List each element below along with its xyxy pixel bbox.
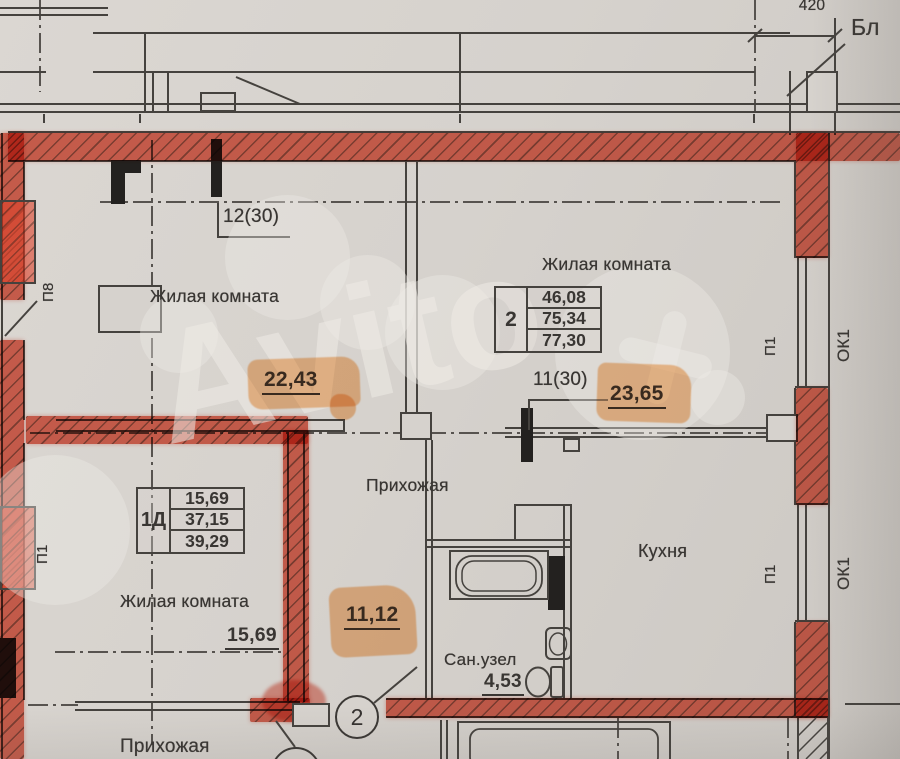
window-frame [797, 258, 799, 388]
toilet-bowl [526, 668, 550, 697]
wall-ref-12-30: 12(30) [223, 206, 279, 228]
highlight-area-11-12 [328, 584, 418, 658]
partition-line [425, 539, 572, 541]
wall-junction-box [766, 414, 798, 442]
partition-line [505, 427, 777, 429]
parapet-line [0, 71, 46, 73]
scan-shading-overlay [0, 0, 900, 759]
shaft-line [515, 504, 572, 506]
room-name-bathroom: Сан.узел [444, 650, 517, 670]
bathtub-inner [462, 561, 536, 591]
highlight-smudge [330, 394, 356, 420]
dimension-420-label: 420 [782, 0, 842, 15]
floor-plan-scan: Avito 420 Бл 12(30) 11(30) Жилая комната… [0, 0, 900, 759]
parapet-line [152, 71, 154, 111]
node-marker-circle: 2 [335, 695, 379, 739]
room-area-living-bottom: 15,69 [225, 624, 279, 650]
watermark-circle [385, 275, 500, 390]
wall-step-box [292, 703, 330, 727]
window-frame [805, 258, 807, 388]
wall-notch-box [563, 438, 580, 452]
area-row: 39,29 [171, 531, 243, 552]
red-wall-top [8, 133, 900, 161]
door-jamb-fill [111, 160, 141, 173]
bathtub [456, 556, 542, 596]
watermark-circle [320, 255, 415, 350]
apartment-spec-table-2: 2 46,08 75,34 77,30 [494, 286, 602, 353]
tick-mark [753, 114, 755, 123]
parapet-line [0, 14, 108, 16]
red-wall-hallway [283, 430, 309, 702]
wall-line [845, 703, 900, 705]
area-values: 46,08 75,34 77,30 [528, 288, 600, 351]
wall-line [828, 133, 830, 759]
area-row: 15,69 [171, 489, 243, 510]
highlight-area-23-65 [596, 362, 692, 423]
watermark-circle [690, 370, 745, 425]
tick-mark [459, 114, 461, 123]
tick-mark [139, 114, 141, 123]
mark-p1-right-bottom: П1 [762, 538, 779, 584]
window-frame [797, 505, 799, 622]
parapet-line [0, 7, 108, 9]
wall-line [446, 720, 448, 759]
partition-line [570, 504, 572, 700]
parapet-line [93, 32, 790, 34]
red-wall-bottom [386, 698, 828, 718]
pilaster-p1 [0, 506, 36, 590]
axis-line [754, 0, 756, 112]
window-frame [805, 505, 807, 622]
mark-p8: П8 [40, 256, 57, 302]
dimension-line [755, 35, 835, 37]
axis-line [787, 718, 789, 759]
apartment-number: 1Д [138, 489, 171, 552]
door-jamb-fill [111, 173, 125, 204]
red-wall-central [26, 416, 308, 444]
axis-line [28, 704, 78, 706]
bathtub-below [470, 729, 658, 759]
apartment-number: 2 [496, 288, 528, 351]
mark-ok1-top: ОК1 [834, 300, 854, 362]
room-name-living-top-right: Жилая комната [542, 254, 671, 275]
block-ref-label: Бл [851, 14, 880, 41]
room-name-hallway-below: Прихожая [120, 736, 210, 758]
mark-p1-left: П1 [34, 518, 51, 564]
axis-line [55, 651, 283, 653]
room-name-kitchen: Кухня [638, 541, 687, 562]
red-wall-right [796, 388, 828, 505]
bathtub-platform [450, 551, 548, 599]
partition-line [405, 162, 407, 414]
area-value: 15,69 [225, 624, 279, 650]
fixtures-layer [0, 0, 900, 759]
tick-mark [43, 114, 45, 123]
apartment-spec-table-1d: 1Д 15,69 37,15 39,29 [136, 487, 245, 554]
area-row: 46,08 [528, 288, 600, 309]
door-swing [5, 301, 37, 336]
axis-line [100, 201, 782, 203]
parapet-line [93, 71, 755, 73]
block-connector-box [806, 71, 838, 113]
wall-junction-box [400, 412, 432, 440]
partition-line [425, 546, 572, 548]
wall-line [827, 718, 829, 759]
room-name-living-top-left: Жилая комната [150, 286, 279, 307]
mark-p1-right-top: П1 [762, 310, 779, 356]
bathtub-below-platform [458, 722, 670, 759]
axis-line [617, 718, 619, 759]
partition-line [416, 162, 418, 414]
red-wall-right [796, 133, 828, 258]
mark-ok1-bottom: ОК1 [834, 528, 854, 590]
toilet-tank [551, 667, 563, 697]
room-name-hallway: Прихожая [366, 475, 449, 496]
area-row: 75,34 [528, 309, 600, 330]
pilaster-p8 [0, 200, 36, 284]
node-marker-circle-partial [271, 747, 321, 759]
room-name-living-bottom: Жилая комната [120, 591, 249, 612]
slab-line [0, 103, 900, 105]
shaft-line [514, 504, 516, 541]
balcony-diagonal [236, 77, 300, 104]
area-row: 77,30 [528, 330, 600, 351]
wall-line [440, 720, 442, 759]
wall-ref-11-30: 11(30) [533, 369, 588, 391]
wall-line [797, 718, 799, 759]
partition-line [343, 419, 345, 432]
balcony-detail-box [200, 92, 236, 112]
ventilation-shaft-fill [548, 556, 565, 610]
area-values: 15,69 37,15 39,29 [171, 489, 243, 552]
slab-line [0, 111, 900, 113]
area-value: 4,53 [482, 671, 524, 696]
room-area-bathroom: 4,53 [482, 671, 524, 696]
node-marker-value: 2 [351, 704, 364, 731]
partition-line [505, 436, 777, 438]
sink [546, 628, 571, 659]
area-row: 37,15 [171, 510, 243, 531]
partition-end-marker [521, 408, 533, 462]
corner-hatch [798, 718, 828, 759]
parapet-line [167, 71, 169, 111]
